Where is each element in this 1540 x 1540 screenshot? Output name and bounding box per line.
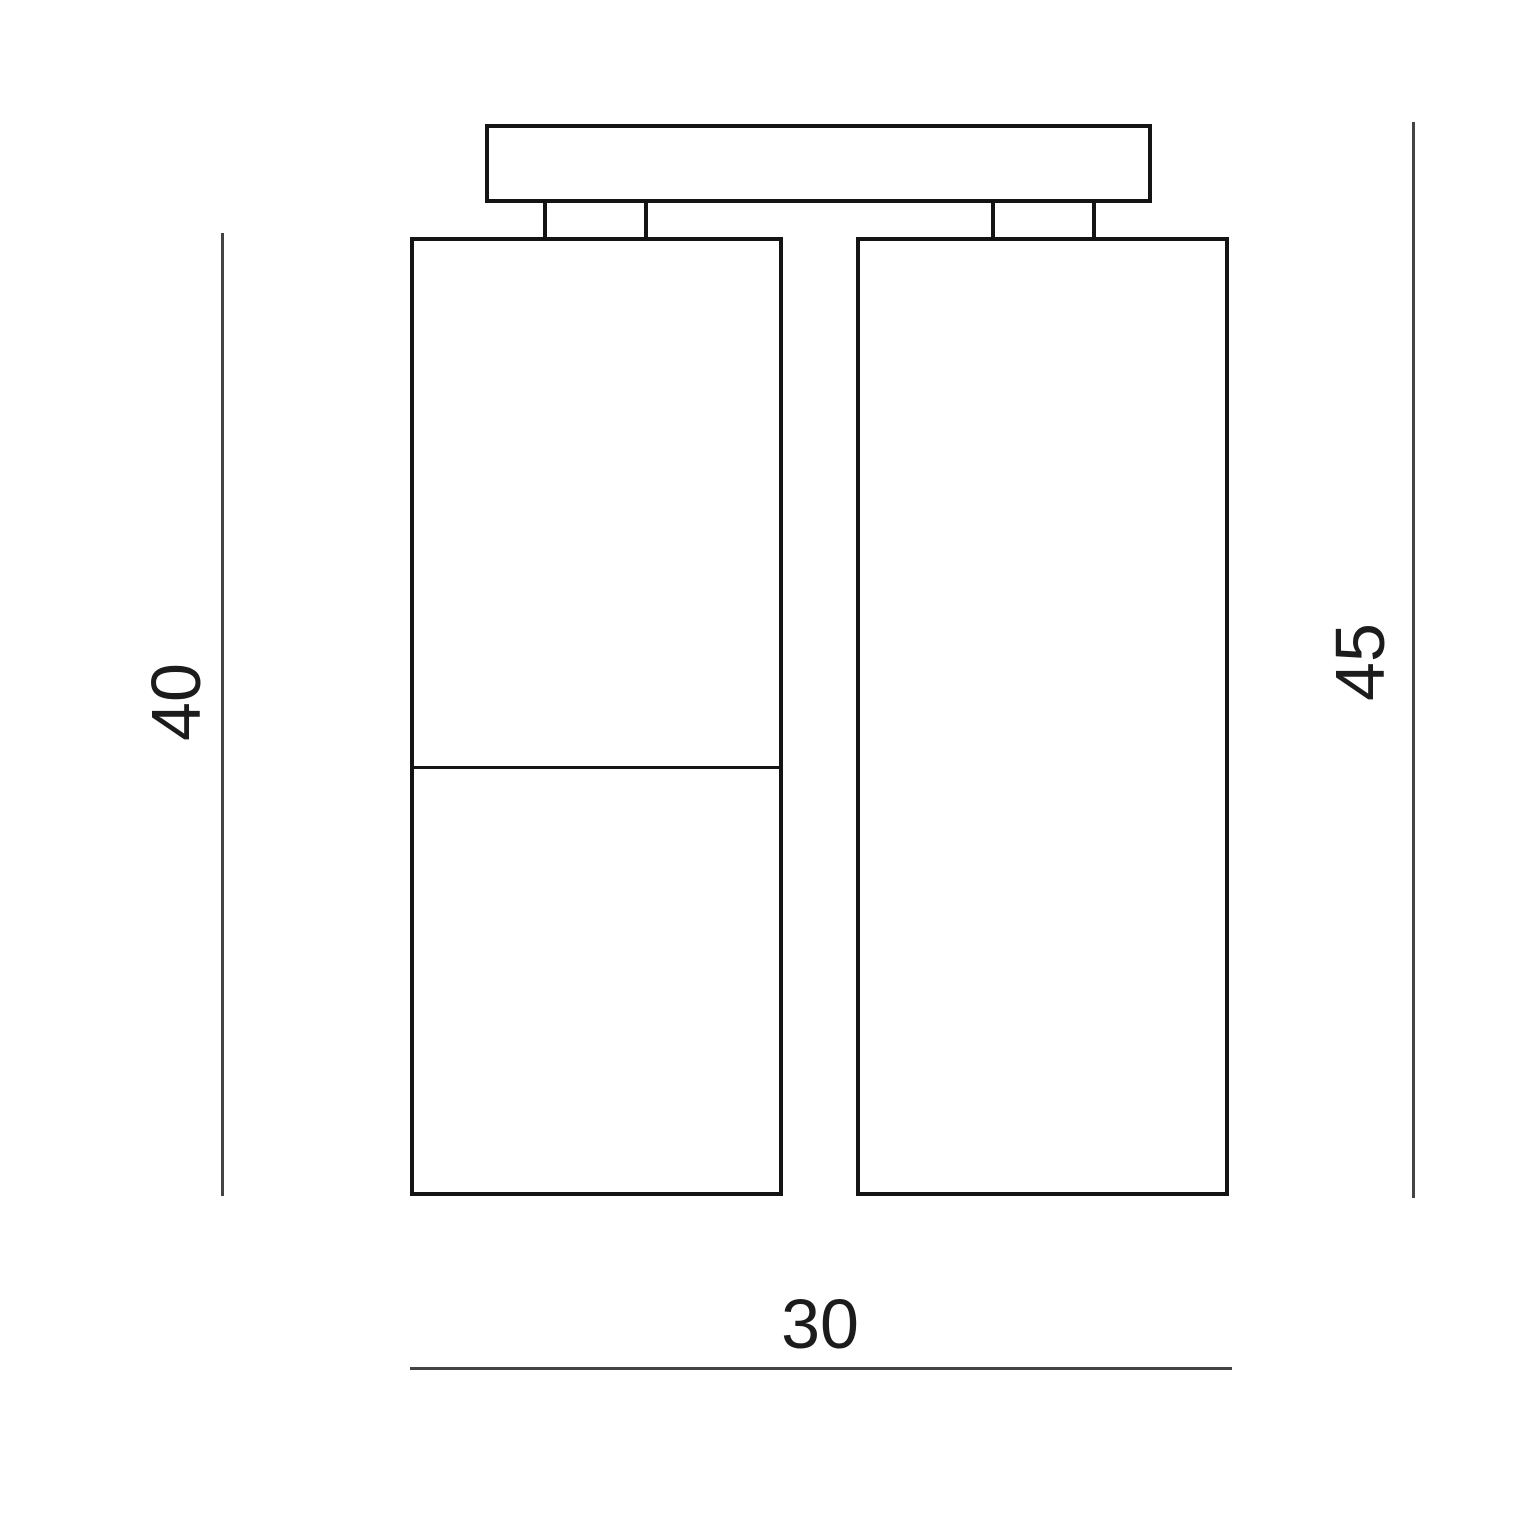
height-dimension-label-right: 45 (1325, 623, 1395, 701)
left-stem (543, 200, 648, 240)
height-dimension-label-left: 40 (141, 663, 211, 741)
left-body-divider-line (414, 766, 779, 769)
width-dimension-line-bottom (410, 1367, 1232, 1370)
left-spotlight-body (410, 237, 783, 1196)
right-spotlight-body (856, 237, 1229, 1196)
ceiling-canopy-plate (485, 124, 1152, 203)
dimension-drawing-canvas: 40 45 30 (0, 0, 1540, 1540)
right-stem (991, 200, 1096, 240)
height-dimension-line-left (221, 233, 224, 1196)
height-dimension-line-right (1412, 122, 1415, 1198)
width-dimension-label-bottom: 30 (781, 1289, 859, 1359)
